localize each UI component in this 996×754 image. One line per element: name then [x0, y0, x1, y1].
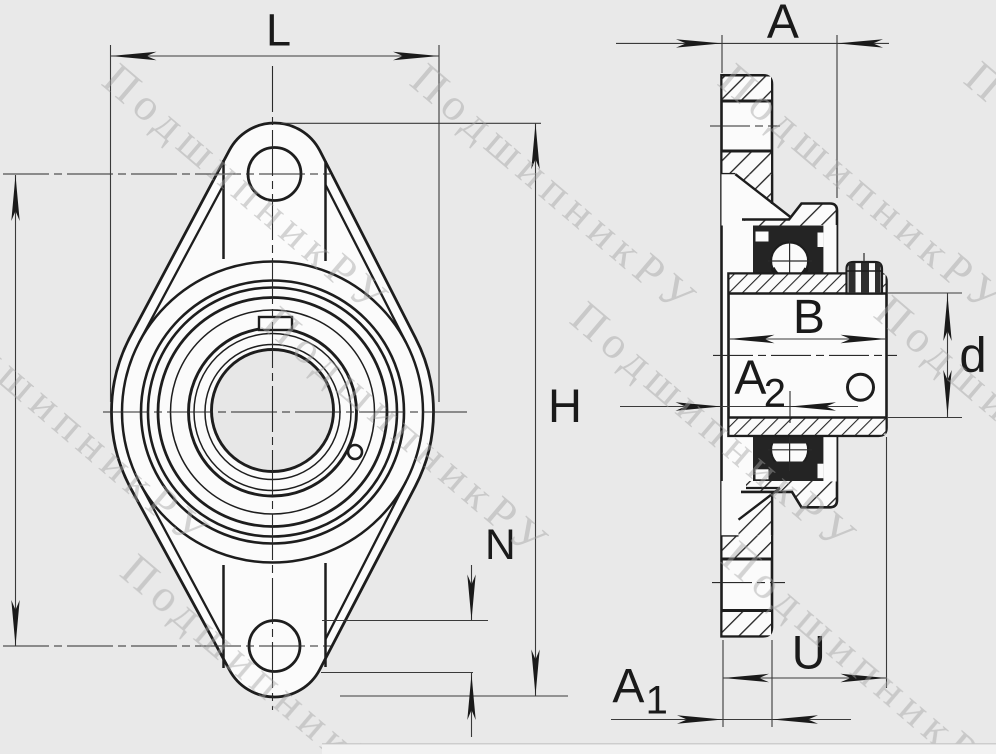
- svg-text:H: H: [548, 379, 582, 432]
- svg-text:A: A: [767, 0, 799, 48]
- svg-text:A: A: [612, 660, 644, 713]
- svg-text:2: 2: [764, 372, 786, 416]
- svg-text:1: 1: [646, 679, 668, 723]
- svg-text:A: A: [734, 352, 766, 405]
- svg-text:L: L: [266, 5, 291, 56]
- svg-text:B: B: [793, 291, 825, 344]
